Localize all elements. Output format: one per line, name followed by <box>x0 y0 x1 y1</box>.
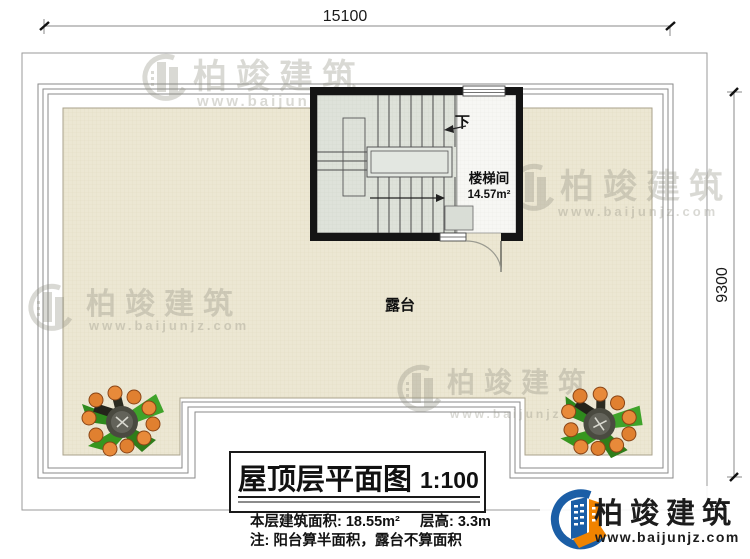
watermark-url: www.baijunjz.com <box>88 318 249 333</box>
watermark-text: 柏竣建筑 <box>447 366 595 398</box>
floor-height-text: 层高: 3.3m <box>420 512 491 530</box>
dimension-height-label: 9300 <box>714 267 731 303</box>
brand-name: 柏竣建筑 <box>594 496 738 530</box>
watermark-url: www.baijunjz.com <box>557 204 718 219</box>
stairwell-window <box>463 86 505 96</box>
drawing-title: 屋顶层平面图 <box>238 464 412 496</box>
brand-logo: 柏竣建筑 www.baijunjz.com <box>540 486 750 559</box>
stair-middle-flight <box>367 147 452 177</box>
stairwell-name-label: 楼梯间 <box>469 170 510 186</box>
watermark-text: 柏竣建筑 <box>560 167 732 206</box>
stairwell-side-panel <box>440 233 466 241</box>
drawing-scale: 1:100 <box>420 467 479 493</box>
title-block: 屋顶层平面图 1:100 本层建筑面积: 18.55m² 层高: 3.3m 注:… <box>230 452 491 549</box>
floor-area-text: 本层建筑面积: 18.55m² <box>250 512 400 530</box>
terrace-label: 露台 <box>385 296 415 314</box>
brand-url: www.baijunjz.com <box>594 529 740 545</box>
watermark-logo-icon <box>145 56 184 98</box>
watermark-text: 柏竣建筑 <box>86 287 242 321</box>
floorplan-drawing: 15100 9300 柏竣建筑 www.baijunjz.com 柏竣建筑 ww… <box>0 0 750 559</box>
floorplan-page: 15100 9300 柏竣建筑 www.baijunjz.com 柏竣建筑 ww… <box>0 0 750 559</box>
stair-bottom-step <box>445 206 473 230</box>
floor-note-text: 注: 阳台算半面积，露台不算面积 <box>250 531 462 549</box>
dimension-width-label: 15100 <box>323 8 368 25</box>
stairwell-area-label: 14.57m² <box>468 189 511 201</box>
